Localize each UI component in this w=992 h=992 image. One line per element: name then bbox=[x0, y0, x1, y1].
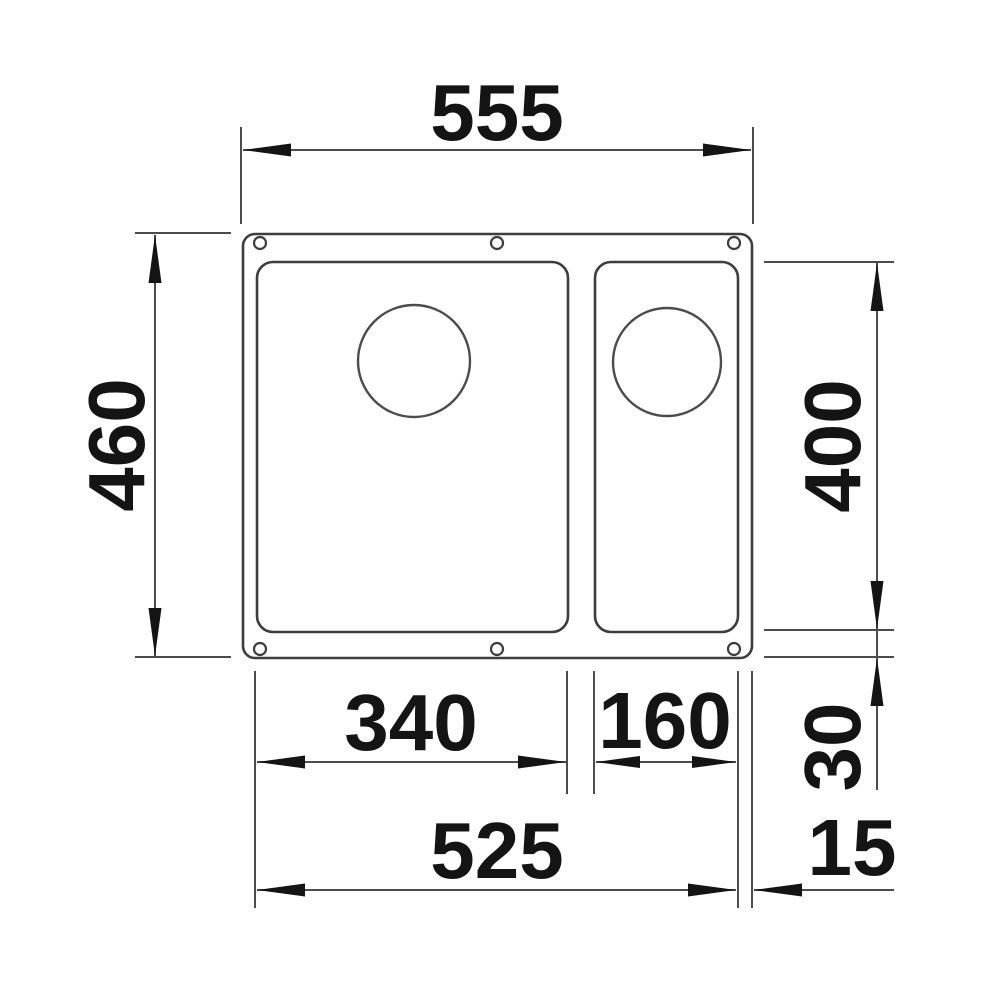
dim-label-bottom-rim: 30 bbox=[788, 703, 877, 792]
arrowhead-left bbox=[257, 884, 305, 897]
small-bowl-drain-hole bbox=[613, 308, 721, 416]
sink-outer-rim bbox=[243, 234, 752, 658]
dim-label-overall-depth: 460 bbox=[72, 378, 161, 511]
main-bowl-drain-hole bbox=[358, 305, 470, 417]
mounting-hole bbox=[728, 643, 740, 655]
dim-label-small-bowl-width: 160 bbox=[598, 676, 731, 765]
mounting-holes bbox=[254, 237, 740, 655]
arrowhead-right bbox=[518, 756, 566, 769]
dim-label-bowls-span: 525 bbox=[430, 806, 563, 895]
dim-main-bowl-width: 340 bbox=[257, 678, 566, 769]
dim-right-rim: 15 bbox=[754, 803, 896, 897]
arrowhead-left bbox=[243, 144, 291, 157]
arrowhead-right bbox=[688, 884, 736, 897]
dim-small-bowl-width: 160 bbox=[596, 676, 736, 768]
mounting-hole bbox=[254, 643, 266, 655]
mounting-hole bbox=[491, 643, 503, 655]
drawing-svg: 555 460 400 30 340 bbox=[0, 0, 992, 992]
dim-label-bowl-depth: 400 bbox=[788, 379, 877, 512]
arrowhead-left bbox=[257, 756, 305, 769]
dim-bowls-span: 525 bbox=[257, 806, 736, 897]
main-bowl bbox=[257, 262, 568, 632]
mounting-hole bbox=[254, 237, 266, 249]
dim-overall-width: 555 bbox=[241, 68, 753, 224]
sink-dimension-drawing: 555 460 400 30 340 bbox=[0, 0, 992, 992]
sink-body bbox=[243, 234, 752, 658]
arrowhead-down bbox=[871, 581, 884, 629]
dim-label-main-bowl-width: 340 bbox=[344, 678, 477, 767]
mounting-hole bbox=[491, 237, 503, 249]
small-bowl bbox=[595, 262, 738, 632]
arrowhead-down bbox=[149, 608, 162, 656]
arrowhead-left bbox=[754, 884, 802, 897]
dim-label-right-rim: 15 bbox=[808, 803, 897, 892]
dim-label-overall-width: 555 bbox=[430, 68, 563, 157]
dim-bowl-depth: 400 30 bbox=[764, 262, 894, 791]
arrowhead-up-rim bbox=[871, 658, 884, 706]
dim-overall-depth: 460 bbox=[72, 233, 231, 657]
arrowhead-up bbox=[149, 235, 162, 283]
arrowhead-up bbox=[871, 263, 884, 311]
mounting-hole bbox=[728, 237, 740, 249]
arrowhead-right bbox=[703, 144, 751, 157]
